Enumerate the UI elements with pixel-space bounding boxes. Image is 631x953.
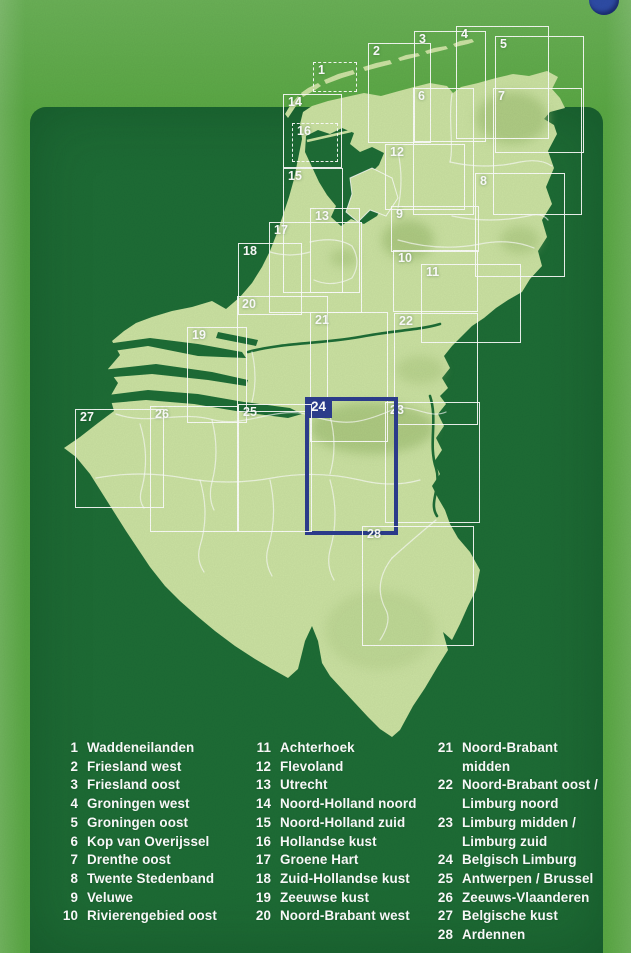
legend-item: 14Noord-Holland noord (247, 795, 425, 814)
legend-item-number: 25 (429, 870, 453, 889)
legend-item-label: Achterhoek (280, 739, 355, 758)
sheet-number: 16 (297, 124, 311, 139)
legend-item-number: 13 (247, 776, 271, 795)
legend-item: 6Kop van Overijssel (54, 833, 242, 852)
legend-item: 21Noord-Brabant midden (429, 739, 609, 776)
sheet-number: 4 (461, 27, 468, 42)
legend-item-label: Noord-Brabant oost / Limburg noord (462, 776, 598, 813)
legend-item-label: Drenthe oost (87, 851, 171, 870)
legend-item-label: Twente Stedenband (87, 870, 214, 889)
legend-item: 2Friesland west (54, 758, 242, 777)
legend-item-number: 9 (54, 889, 78, 908)
legend-item: 13Utrecht (247, 776, 425, 795)
legend-item-number: 21 (429, 739, 453, 758)
legend-item-number: 1 (54, 739, 78, 758)
sheet-number: 7 (498, 89, 505, 104)
legend-item: 20Noord-Brabant west (247, 907, 425, 926)
legend-item-number: 19 (247, 889, 271, 908)
legend-item-number: 6 (54, 833, 78, 852)
legend-item-label: Belgisch Limburg (462, 851, 577, 870)
sheet-number: 2 (373, 44, 380, 59)
legend-item-number: 18 (247, 870, 271, 889)
legend-item-label: Noord-Brabant midden (462, 739, 609, 776)
legend-item-label: Hollandse kust (280, 833, 377, 852)
sheet-number: 28 (367, 527, 381, 542)
legend-item-number: 12 (247, 758, 271, 777)
legend-item-label: Friesland oost (87, 776, 180, 795)
sheet-number: 22 (399, 314, 413, 329)
legend-item-number: 4 (54, 795, 78, 814)
legend-item-number: 24 (429, 851, 453, 870)
sheet-number: 17 (274, 223, 288, 238)
legend-item-number: 23 (429, 814, 453, 833)
legend-column-3: 21Noord-Brabant midden22Noord-Brabant oo… (429, 739, 609, 945)
map-sheet-1: 1 (313, 62, 357, 92)
legend-item: 8Twente Stedenband (54, 870, 242, 889)
map-index-cover: 1234567891011121314151617181920212223242… (0, 0, 631, 953)
legend-item: 18Zuid-Hollandse kust (247, 870, 425, 889)
legend-item-number: 8 (54, 870, 78, 889)
legend-item-number: 14 (247, 795, 271, 814)
legend-item-label: Zuid-Hollandse kust (280, 870, 410, 889)
sheet-number: 12 (390, 145, 404, 160)
legend-item-number: 2 (54, 758, 78, 777)
legend-item: 22Noord-Brabant oost / Limburg noord (429, 776, 609, 813)
sheet-number: 25 (243, 405, 257, 420)
legend-item-number: 10 (54, 907, 78, 926)
legend-item-label: Antwerpen / Brussel (462, 870, 593, 889)
map-sheet-25: 25 (238, 404, 312, 532)
legend-item-label: Rivierengebied oost (87, 907, 217, 926)
sheet-number: 18 (243, 244, 257, 259)
sheet-number: 5 (500, 37, 507, 52)
sheet-number: 3 (419, 32, 426, 47)
legend-item: 9Veluwe (54, 889, 242, 908)
legend-item: 25Antwerpen / Brussel (429, 870, 609, 889)
legend-column-1: 1Waddeneilanden2Friesland west3Friesland… (54, 739, 242, 926)
sheet-number: 10 (398, 251, 412, 266)
legend-item-number: 5 (54, 814, 78, 833)
legend-item-number: 26 (429, 889, 453, 908)
sheet-number: 6 (418, 89, 425, 104)
sheet-number: 1 (318, 63, 325, 78)
legend-item: 10Rivierengebied oost (54, 907, 242, 926)
legend-item-label: Belgische kust (462, 907, 558, 926)
legend-item-label: Zeeuws-Vlaanderen (462, 889, 589, 908)
legend-item: 26Zeeuws-Vlaanderen (429, 889, 609, 908)
map-sheet-12: 12 (385, 144, 465, 210)
map-sheet-23: 23 (385, 402, 480, 523)
map-sheet-16: 16 (292, 123, 338, 162)
sheet-number: 20 (242, 297, 256, 312)
legend-item-number: 20 (247, 907, 271, 926)
legend-item-number: 28 (429, 926, 453, 945)
legend-item: 15Noord-Holland zuid (247, 814, 425, 833)
legend-item: 19Zeeuwse kust (247, 889, 425, 908)
legend-item: 7Drenthe oost (54, 851, 242, 870)
legend-item-number: 7 (54, 851, 78, 870)
legend-item-number: 22 (429, 776, 453, 795)
sheet-number: 11 (426, 265, 439, 280)
legend-item: 12Flevoland (247, 758, 425, 777)
legend-item-label: Limburg midden / Limburg zuid (462, 814, 576, 851)
legend-item-number: 27 (429, 907, 453, 926)
legend-item-label: Noord-Holland noord (280, 795, 417, 814)
sheet-number: 15 (288, 169, 302, 184)
sheet-number: 21 (315, 313, 329, 328)
legend-item-label: Groningen oost (87, 814, 188, 833)
legend-item: 5Groningen oost (54, 814, 242, 833)
legend-item: 27Belgische kust (429, 907, 609, 926)
sheet-number: 19 (192, 328, 206, 343)
legend-item: 4Groningen west (54, 795, 242, 814)
legend-item-label: Utrecht (280, 776, 328, 795)
legend-item: 17Groene Hart (247, 851, 425, 870)
legend-item: 3Friesland oost (54, 776, 242, 795)
legend-item-label: Kop van Overijssel (87, 833, 209, 852)
legend-item-number: 3 (54, 776, 78, 795)
legend-item: 16Hollandse kust (247, 833, 425, 852)
legend-item: 28Ardennen (429, 926, 609, 945)
legend-item: 1Waddeneilanden (54, 739, 242, 758)
map-sheet-24: 24 (305, 397, 398, 535)
legend-item-label: Noord-Brabant west (280, 907, 410, 926)
legend-item-number: 16 (247, 833, 271, 852)
legend-item-label: Groene Hart (280, 851, 359, 870)
sheet-number: 8 (480, 174, 487, 189)
legend-item: 11Achterhoek (247, 739, 425, 758)
sheet-number: 14 (288, 95, 302, 110)
map-sheet-8: 8 (475, 173, 565, 277)
legend-item: 23Limburg midden / Limburg zuid (429, 814, 609, 851)
legend-column-2: 11Achterhoek12Flevoland13Utrecht14Noord-… (247, 739, 425, 926)
legend-item-number: 11 (247, 739, 271, 758)
sheet-number: 27 (80, 410, 94, 425)
legend-item-label: Zeeuwse kust (280, 889, 369, 908)
map-sheet-27: 27 (75, 409, 164, 508)
legend-item-label: Noord-Holland zuid (280, 814, 405, 833)
map-sheet-28: 28 (362, 526, 474, 646)
legend-item-label: Waddeneilanden (87, 739, 194, 758)
legend-item: 24Belgisch Limburg (429, 851, 609, 870)
map-sheet-9: 9 (391, 206, 479, 252)
legend-item-number: 15 (247, 814, 271, 833)
legend-item-label: Veluwe (87, 889, 133, 908)
legend-item-label: Groningen west (87, 795, 190, 814)
legend-item-number: 17 (247, 851, 271, 870)
legend-item-label: Friesland west (87, 758, 181, 777)
legend-item-label: Flevoland (280, 758, 343, 777)
legend-item-label: Ardennen (462, 926, 525, 945)
